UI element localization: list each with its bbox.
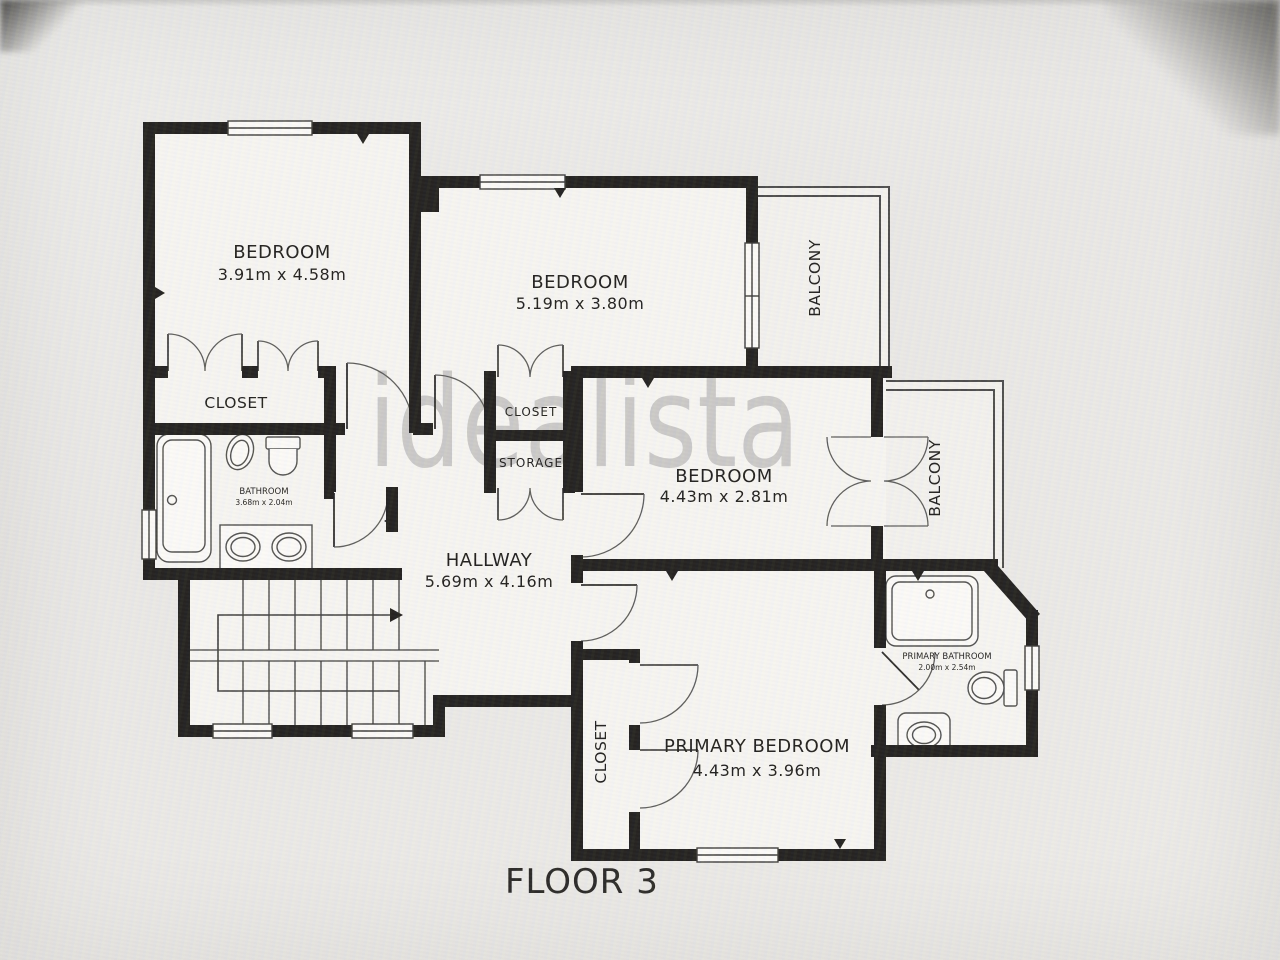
bathroom-dims: 3.68m x 2.04m — [235, 498, 292, 507]
bedroom3-dims: 4.43m x 2.81m — [660, 487, 789, 506]
hallway-dims: 5.69m x 4.16m — [425, 572, 554, 591]
primary-bedroom-name: PRIMARY BEDROOM — [664, 736, 850, 757]
primary-bathroom-window — [1025, 646, 1039, 690]
bedroom2-balcony-window — [745, 243, 759, 348]
primary-bedroom-window — [697, 848, 778, 862]
bedroom1-name: BEDROOM — [233, 242, 330, 263]
primary-bathtub-faucet — [926, 590, 934, 598]
floorplan-photo: idealista — [0, 0, 1280, 960]
double-sink-vanity — [220, 525, 312, 569]
bedroom2-window — [480, 175, 565, 189]
stairs-window-right — [352, 724, 413, 738]
bathtub-faucet — [168, 496, 177, 505]
primary-bathroom-name: PRIMARY BATHROOM — [902, 652, 991, 662]
primary-closet-label: CLOSET — [592, 720, 610, 783]
hall-closet-label: CLOSET — [505, 405, 558, 419]
floor-title: FLOOR 3 — [505, 862, 659, 902]
bedroom2-dims: 5.19m x 3.80m — [516, 294, 645, 313]
bedroom1-window — [228, 121, 312, 135]
bedroom1-closet-label: CLOSET — [204, 394, 267, 412]
primary-toilet — [968, 670, 1017, 706]
primary-bedroom-dims: 4.43m x 3.96m — [693, 761, 822, 780]
bathroom-name: BATHROOM — [239, 487, 288, 497]
bathroom-window — [142, 510, 156, 559]
stairs-window-left — [213, 724, 272, 738]
balcony-top-label: BALCONY — [806, 239, 824, 316]
balcony-right-floor — [886, 381, 1003, 567]
primary-bathroom-dims: 2.00m x 2.54m — [918, 663, 975, 672]
bedroom3-name: BEDROOM — [675, 466, 772, 487]
bedroom1-dims: 3.91m x 4.58m — [218, 265, 347, 284]
bedroom2-name: BEDROOM — [531, 272, 628, 293]
hallway-name: HALLWAY — [446, 550, 533, 571]
storage-label: STORAGE — [499, 456, 563, 470]
bidet — [266, 437, 300, 475]
floorplan-drawing: idealista — [0, 0, 1280, 960]
balcony-right-label: BALCONY — [926, 439, 944, 516]
